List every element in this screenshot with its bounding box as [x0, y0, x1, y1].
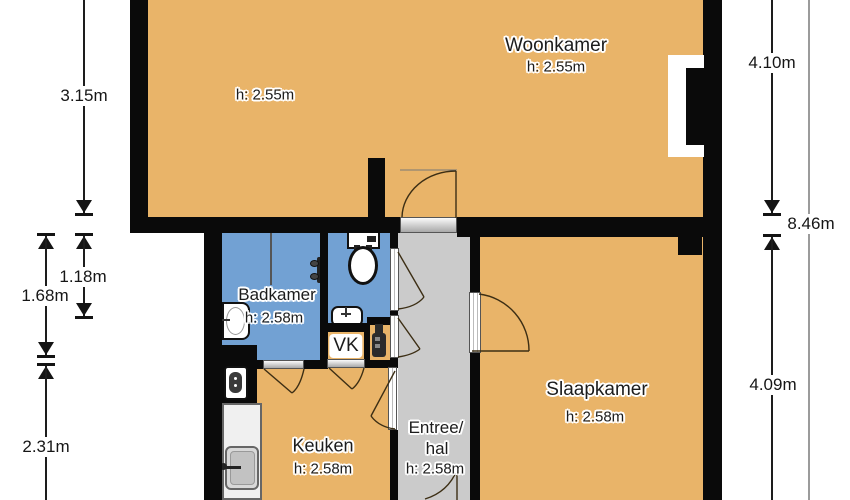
room-label-slaapkamer: Slaapkamer	[546, 379, 647, 401]
dimension-line-total	[808, 0, 810, 500]
room-height-entree: h: 2.58m	[406, 461, 464, 478]
door-leaf	[398, 252, 424, 297]
dimension-tick	[37, 355, 55, 358]
room-label-vk: VK	[329, 334, 362, 358]
dimension-label: 8.46m	[785, 214, 836, 234]
dimension-arrow-down	[76, 303, 92, 316]
dimension-tick	[75, 213, 93, 216]
door-leaf	[264, 369, 292, 393]
dimension-arrow-down	[764, 200, 780, 213]
dimension-label: 4.09m	[747, 375, 798, 395]
room-height-keuken: h: 2.58m	[294, 461, 352, 478]
dimension-line	[771, 0, 773, 213]
door-arc	[398, 349, 420, 357]
dimension-label: 4.10m	[746, 53, 797, 73]
door-arc	[371, 416, 395, 429]
dimension-label: 2.31m	[20, 437, 71, 457]
room-label-badkamer: Badkamer	[238, 285, 315, 305]
room-label-entree-1: Entree/	[409, 418, 464, 438]
dimension-tick	[75, 316, 93, 319]
room-label-entree-2: hal	[426, 439, 449, 459]
dimension-label: 1.68m	[19, 286, 70, 306]
floorplan: 3.15m 1.18m 1.68m 2.31m 4.10m 8.46m 4.09…	[0, 0, 850, 500]
room-height-woonkamer-left: h: 2.55m	[236, 87, 294, 104]
dimension-tick	[763, 213, 781, 216]
door-leaf	[329, 368, 352, 389]
door-arc	[352, 368, 364, 389]
door-leaf	[371, 371, 395, 416]
room-height-badkamer: h: 2.58m	[245, 310, 303, 327]
room-label-woonkamer: Woonkamer	[505, 35, 607, 57]
room-height-woonkamer: h: 2.55m	[527, 59, 585, 76]
dimension-line	[45, 366, 47, 500]
dimension-line	[771, 237, 773, 500]
room-height-slaapkamer: h: 2.58m	[566, 409, 624, 426]
dimension-line	[83, 0, 85, 213]
dimension-label: 3.15m	[58, 86, 109, 106]
dimension-label: 1.18m	[57, 267, 108, 287]
dimension-arrow-down	[38, 342, 54, 355]
door-arc	[479, 294, 529, 351]
door-leaf	[398, 318, 420, 349]
door-arc	[398, 297, 424, 309]
dimension-arrow-down	[76, 200, 92, 213]
door-arc	[402, 171, 456, 217]
door-arc	[292, 369, 304, 393]
room-label-keuken: Keuken	[292, 436, 353, 457]
